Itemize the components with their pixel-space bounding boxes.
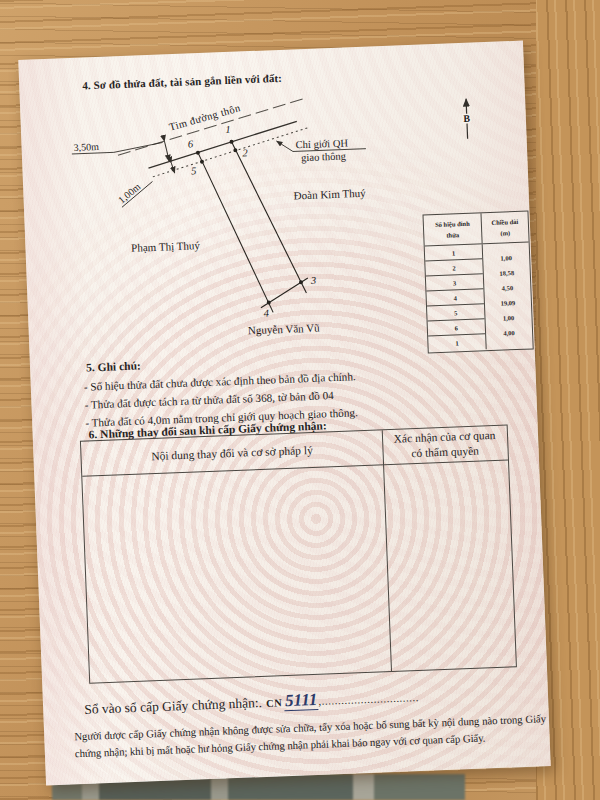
road-width-dim-label: 3,50m: [73, 141, 99, 153]
vertex-5-label: 5: [191, 165, 197, 176]
vertex-table-header: Số hiệu đỉnh thửa Chiều dài (m): [424, 212, 529, 247]
plot-side-right: [232, 139, 307, 296]
vertex-number-column: 1 2 3 4 5 6 1: [425, 244, 487, 351]
neighbor-right-label: Đoàn Kim Thuý: [293, 187, 366, 202]
registry-label: Sổ vào sổ cấp Giấy chứng nhận:.: [84, 695, 262, 718]
vertex-table-col1-header: Số hiệu đỉnh thửa: [424, 213, 483, 245]
boundary-dim-label-group: 1,00m: [115, 173, 153, 208]
changes-col2-header: Xác nhận của cơ quan có thẩm quyền: [382, 425, 508, 464]
notice-paragraph: Người được cấp Giấy chứng nhận không đượ…: [74, 710, 547, 762]
qh-label-line1: Chỉ giới QH: [296, 137, 349, 150]
vertex-4-label: 4: [263, 308, 269, 319]
qh-label-line2: giao thông: [301, 150, 347, 163]
road-width-dim-arrow: [164, 141, 169, 161]
vertex-6-marker: [196, 151, 200, 155]
registry-number-handwritten: 5111: [284, 691, 319, 711]
plot-side-left: [198, 150, 273, 315]
north-arrow-icon: B: [463, 99, 472, 139]
changes-table: Nội dung thay đổi và cơ sở pháp lý Xác n…: [80, 424, 517, 683]
north-label: B: [463, 113, 470, 124]
road-center-label: Tim đường thôn: [168, 102, 242, 133]
vertex-1-label: 1: [225, 124, 231, 135]
vertex-table-col2-header: Chiều dài (m): [481, 212, 528, 244]
length-column: 1,00 18,58 4,50 19,09 1,00 4,00: [483, 243, 533, 350]
section4-title: 4. Sơ đồ thửa đất, tài sản gắn liền với …: [82, 72, 282, 92]
neighbor-left-label: Phạm Thị Thuý: [131, 239, 201, 255]
registry-line: Sổ vào sổ cấp Giấy chứng nhận:. CN 5111 …: [84, 687, 419, 719]
vertex-length-table: Số hiệu đỉnh thửa Chiều dài (m) 1 2 3 4 …: [422, 210, 533, 353]
certificate-page: 4. Sơ đồ thửa đất, tài sản gắn liền với …: [18, 41, 550, 786]
vertex-2-label: 2: [242, 147, 248, 158]
length-value: 18,58: [484, 265, 531, 281]
section5-title: 5. Ghi chú:: [86, 359, 141, 373]
length-value: 4,50: [484, 280, 531, 296]
registry-prefix: CN: [266, 697, 283, 709]
photo-of-certificate: { "document": { "section4_title": "4. Sơ…: [0, 0, 600, 800]
vertex-table-body: 1 2 3 4 5 6 1 1,00 18,58 4,50 19,09 1,00…: [425, 243, 533, 352]
boundary-dim-arrow: [171, 163, 174, 173]
length-value: 1,00: [483, 250, 530, 266]
changes-table-divider: [382, 430, 392, 671]
vertex-6-label: 6: [188, 138, 194, 149]
vertex-3-label: 3: [310, 275, 317, 286]
length-value: 19,09: [485, 295, 532, 311]
neighbor-bottom-label: Nguyễn Văn Vũ: [248, 322, 321, 337]
length-value: 1,00: [485, 310, 532, 326]
length-value: 4,00: [486, 325, 533, 341]
registry-dotted-leader: ,..............................: [318, 691, 419, 707]
table-row: 1: [428, 334, 486, 351]
vertex-1-marker: [229, 140, 233, 144]
